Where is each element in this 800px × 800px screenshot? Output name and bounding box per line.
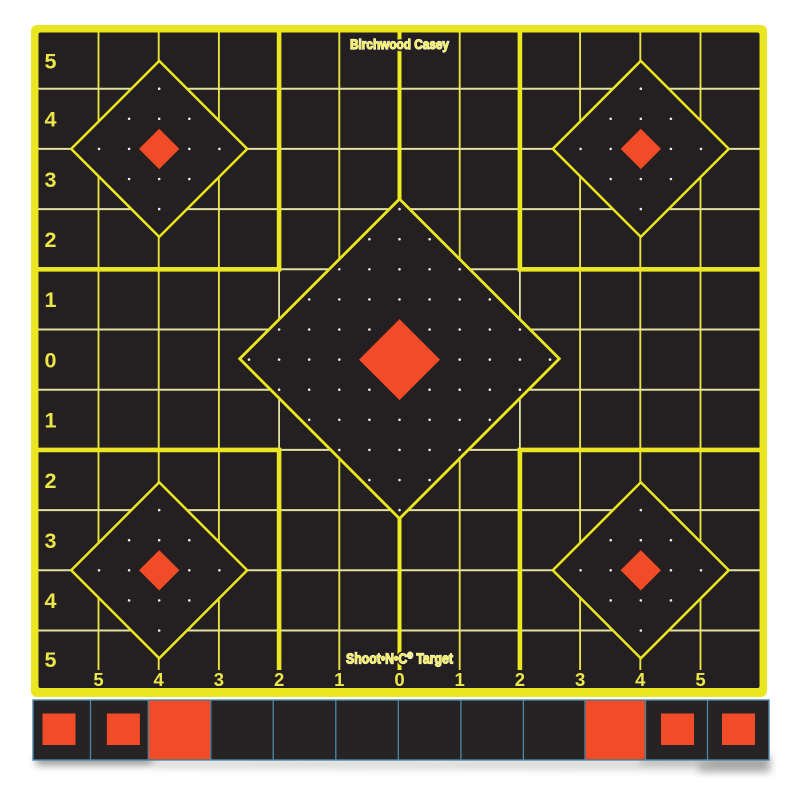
svg-text:5: 5 [45, 49, 57, 73]
svg-text:3: 3 [45, 168, 57, 192]
svg-text:4: 4 [635, 669, 646, 690]
svg-text:2: 2 [515, 669, 525, 690]
svg-text:3: 3 [45, 529, 57, 553]
svg-text:3: 3 [575, 669, 585, 690]
svg-text:0: 0 [394, 669, 404, 690]
svg-text:4: 4 [45, 108, 57, 132]
svg-text:5: 5 [45, 648, 57, 672]
svg-text:0: 0 [45, 348, 57, 372]
svg-text:5: 5 [93, 669, 103, 690]
svg-text:2: 2 [45, 228, 57, 252]
svg-text:2: 2 [45, 469, 57, 493]
svg-text:4: 4 [154, 669, 165, 690]
svg-text:2: 2 [274, 669, 284, 690]
svg-text:3: 3 [214, 669, 224, 690]
svg-text:1: 1 [455, 669, 465, 690]
svg-text:1: 1 [334, 669, 344, 690]
svg-text:1: 1 [45, 409, 57, 433]
svg-text:Birchwood Casey: Birchwood Casey [350, 37, 449, 52]
svg-text:1: 1 [45, 288, 57, 312]
svg-text:4: 4 [45, 589, 57, 613]
svg-text:5: 5 [695, 669, 705, 690]
svg-text:Shoot•N•C® Target: Shoot•N•C® Target [346, 651, 453, 668]
